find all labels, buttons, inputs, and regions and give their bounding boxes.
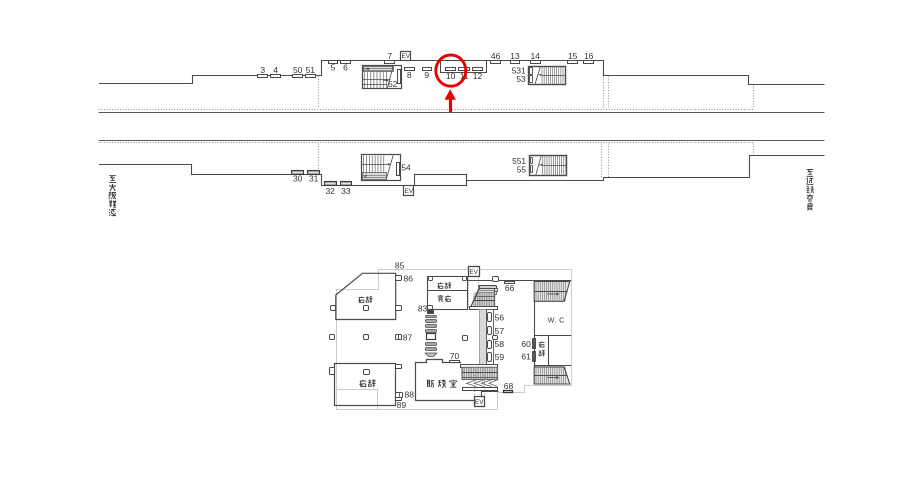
svg-text:30: 30 [293,174,303,184]
svg-text:12: 12 [473,71,483,81]
svg-text:85: 85 [395,261,405,271]
svg-text:14: 14 [530,51,540,61]
svg-text:52: 52 [388,79,398,89]
svg-text:9: 9 [424,70,429,80]
svg-text:59: 59 [495,352,505,362]
svg-text:EV: EV [475,399,484,406]
svg-text:13: 13 [510,51,520,61]
svg-text:87: 87 [403,333,413,343]
svg-text:EV: EV [405,188,414,195]
svg-text:7: 7 [387,51,392,61]
svg-text:89: 89 [397,400,407,410]
svg-text:10: 10 [446,71,456,81]
svg-text:33: 33 [341,186,351,196]
svg-text:31: 31 [309,174,319,184]
svg-text:8: 8 [407,70,412,80]
svg-text:55: 55 [517,165,527,175]
svg-text:88: 88 [405,390,415,400]
svg-text:16: 16 [584,51,594,61]
svg-text:68: 68 [504,381,514,391]
svg-text:50: 50 [293,65,303,75]
svg-text:66: 66 [505,283,515,293]
svg-text:3: 3 [260,65,265,75]
svg-text:W. C: W. C [548,316,565,325]
svg-text:46: 46 [491,51,501,61]
svg-text:58: 58 [495,339,505,349]
svg-text:86: 86 [404,274,414,284]
svg-text:61: 61 [521,352,531,362]
svg-text:83: 83 [418,303,428,313]
svg-text:56: 56 [495,312,505,322]
svg-text:70: 70 [450,351,460,361]
svg-text:4: 4 [273,65,278,75]
svg-text:32: 32 [325,186,335,196]
svg-text:54: 54 [401,163,411,173]
svg-text:5: 5 [331,63,336,73]
svg-text:6: 6 [343,63,348,73]
svg-text:60: 60 [521,339,531,349]
svg-text:EV: EV [469,269,478,276]
svg-text:15: 15 [568,51,578,61]
svg-text:53: 53 [516,74,526,84]
svg-text:51: 51 [306,65,316,75]
svg-text:57: 57 [495,326,505,336]
svg-text:EV: EV [402,53,411,60]
